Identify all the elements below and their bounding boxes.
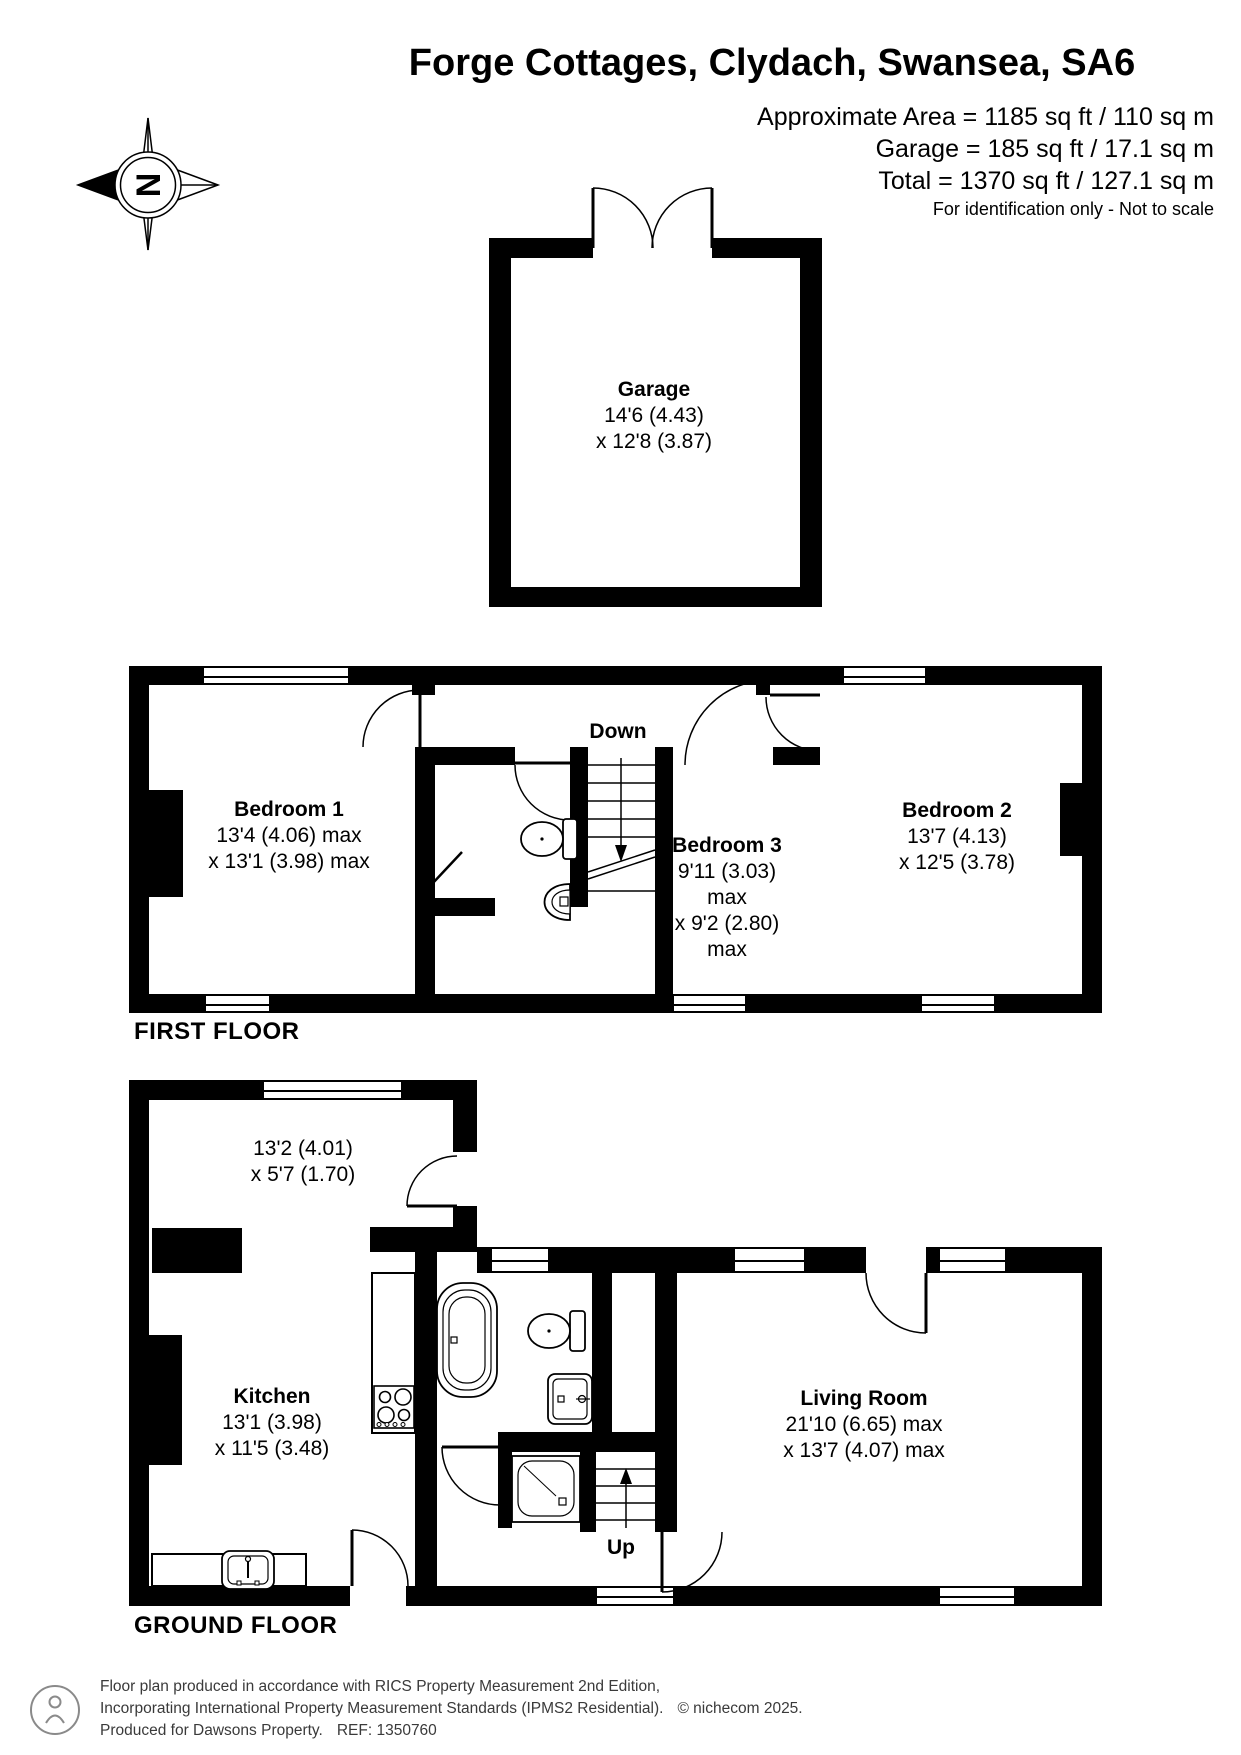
total-area-text: Total = 1370 sq ft / 127.1 sq m [878,167,1214,196]
stairs-down-label: Down [589,720,646,744]
hallway-label: 13'2 (4.01) x 5'7 (1.70) [251,1136,355,1188]
kitchen-sink-icon [222,1551,274,1589]
page-title: Forge Cottages, Clydach, Swansea, SA6 [330,42,1214,85]
bath-icon [437,1283,497,1397]
stairs-up-icon [596,1468,657,1528]
garage-area-text: Garage = 185 sq ft / 17.1 sq m [876,135,1214,164]
stairs-down-icon [588,758,655,891]
footer-ref: REF: 1350760 [337,1722,437,1739]
approx-area-text: Approximate Area = 1185 sq ft / 110 sq m [757,103,1214,132]
bedroom1-label: Bedroom 1 13'4 (4.06) max x 13'1 (3.98) … [208,797,370,875]
footer-text: Floor plan produced in accordance with R… [100,1676,803,1742]
footer-line-1: Floor plan produced in accordance with R… [100,1676,803,1698]
footer-line-2: Incorporating International Property Mea… [100,1698,803,1720]
garage-label: Garage 14'6 (4.43) x 12'8 (3.87) [596,377,712,455]
disclaimer-text: For identification only - Not to scale [933,199,1214,220]
ground-floor-label: GROUND FLOOR [134,1612,337,1640]
bedroom2-label: Bedroom 2 13'7 (4.13) x 12'5 (3.78) [899,798,1015,876]
footer-copyright: © nichecom 2025. [677,1700,802,1717]
basin-icon [545,884,571,920]
shower-icon [512,1456,580,1522]
hob-icon [374,1386,414,1428]
compass-letter: N [130,173,168,198]
toilet-icon-ground [528,1311,585,1351]
ground-floor-doors [352,1156,926,1592]
footer: Floor plan produced in accordance with R… [28,1676,803,1742]
kitchen-label: Kitchen 13'1 (3.98) x 11'5 (3.48) [215,1384,330,1462]
compass-icon: N [78,118,218,250]
garage-door [593,188,712,248]
bedroom3-label: Bedroom 3 9'11 (3.03) max x 9'2 (2.80) m… [672,833,782,963]
first-floor-label: FIRST FLOOR [134,1018,299,1046]
nichecom-logo-icon [28,1676,82,1742]
living-room-label: Living Room 21'10 (6.65) max x 13'7 (4.0… [783,1386,945,1464]
toilet-icon [521,819,577,859]
sink-icon [548,1374,592,1424]
stairs-up-label: Up [607,1536,635,1560]
footer-line-3: Produced for Dawsons Property.REF: 13507… [100,1720,803,1742]
floor-plan-page: Forge Cottages, Clydach, Swansea, SA6 Ap… [0,0,1241,1755]
